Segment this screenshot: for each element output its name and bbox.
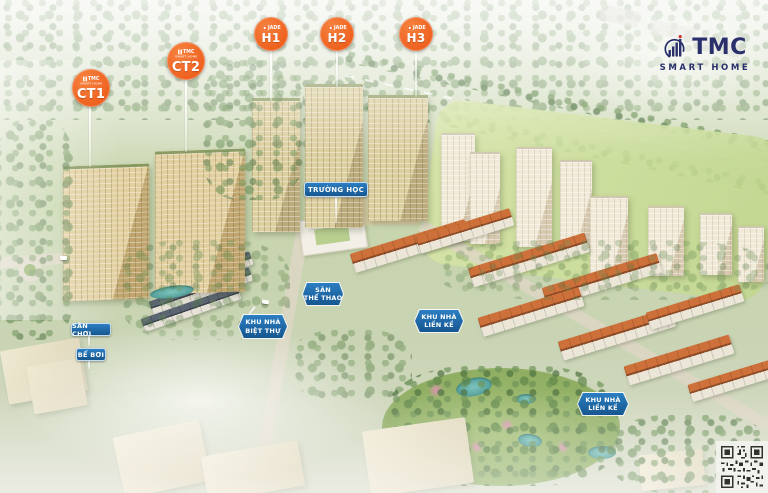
- badge-pole: [270, 51, 272, 101]
- badge-brand-sub: SMART HOME: [80, 82, 102, 85]
- label-pole: [88, 361, 90, 369]
- label-school: TRƯỜNG HỌC: [304, 182, 368, 197]
- label-text: THỂ THAO: [304, 294, 343, 302]
- tmc-mini-logo: TMC: [83, 76, 99, 81]
- badge-pole: [185, 80, 187, 152]
- label-text: SÂN: [315, 286, 331, 294]
- badge-id: CT2: [172, 61, 200, 74]
- jade-swirl-icon: [328, 25, 333, 30]
- label-text: TRƯỜNG HỌC: [308, 186, 364, 194]
- foreground-building: [26, 358, 88, 415]
- tmc-mini-logo: TMC: [178, 49, 194, 54]
- logo-subtitle: SMART HOME: [660, 64, 751, 73]
- label-text: LIỀN KỀ: [588, 404, 618, 412]
- badge-h1: JADE H1: [254, 17, 288, 51]
- label-text: KHU NHÀ: [421, 313, 456, 321]
- label-text: KHU NHÀ: [585, 396, 620, 404]
- label-text: BỂ BƠI: [78, 351, 105, 359]
- badge-brand: JADE: [267, 25, 280, 30]
- tower-h3: [368, 95, 428, 221]
- jade-mini-logo: JADE: [407, 25, 425, 30]
- label-text: SÂN CHƠI: [72, 322, 110, 338]
- label-pole: [88, 336, 90, 346]
- foreground-building: [362, 417, 474, 493]
- label-text: LIỀN KỀ: [424, 321, 454, 329]
- badge-id: H1: [262, 32, 281, 44]
- jade-mini-logo: JADE: [262, 25, 280, 30]
- tower-h2: [305, 84, 363, 228]
- badge-ct1: TMC SMART HOME CT1: [72, 69, 110, 107]
- logo-title: TMC: [692, 37, 747, 59]
- tower-apartment: [516, 147, 552, 247]
- tower-apartment: [560, 160, 592, 246]
- tree-cluster: [440, 240, 768, 300]
- foreground-building: [201, 440, 305, 493]
- label-text: KHU NHÀ: [245, 318, 280, 326]
- badge-brand: TMC: [183, 49, 195, 54]
- label-townhouse-area-2: KHU NHÀLIỀN KỀ: [577, 392, 629, 416]
- badge-h3: JADE H3: [399, 17, 433, 51]
- tree-cluster: [200, 60, 305, 200]
- tmc-building-icon: [663, 34, 689, 62]
- tmc-bars-icon: [178, 49, 182, 54]
- foreground-building: [113, 420, 212, 493]
- badge-id: CT1: [77, 88, 105, 101]
- badge-brand: JADE: [333, 25, 346, 30]
- tmc-logo: TMC SMART HOME: [646, 34, 764, 73]
- masterplan-scene: TMC SMART HOME CT1 TMC SMART HOME CT2 JA…: [0, 0, 768, 493]
- label-sports-field: SÂNTHỂ THAO: [302, 282, 344, 306]
- jade-swirl-icon: [407, 25, 412, 30]
- badge-id: H3: [407, 32, 426, 44]
- badge-ct2: TMC SMART HOME CT2: [167, 42, 205, 80]
- car: [60, 256, 67, 260]
- badge-h2: JADE H2: [320, 17, 354, 51]
- label-text: BIỆT THỰ: [245, 327, 280, 335]
- label-villa-area: KHU NHÀBIỆT THỰ: [238, 314, 288, 339]
- badge-pole: [89, 107, 91, 167]
- jade-swirl-icon: [262, 25, 267, 30]
- tmc-bars-icon: [83, 76, 87, 81]
- badge-pole: [336, 51, 338, 87]
- badge-brand-sub: SMART HOME: [175, 55, 197, 58]
- label-pole: [335, 197, 337, 223]
- tree-cluster: [292, 330, 412, 400]
- badge-pole: [415, 51, 417, 97]
- jade-mini-logo: JADE: [328, 25, 346, 30]
- qr-code: [716, 441, 768, 493]
- tree-cluster: [0, 120, 80, 340]
- badge-brand: JADE: [412, 25, 425, 30]
- badge-id: H2: [328, 32, 347, 44]
- label-playground: SÂN CHƠI: [71, 323, 111, 336]
- label-townhouse-area-1: KHU NHÀLIỀN KỀ: [414, 309, 464, 333]
- badge-brand: TMC: [88, 76, 100, 81]
- label-swimming-pool: BỂ BƠI: [76, 348, 106, 361]
